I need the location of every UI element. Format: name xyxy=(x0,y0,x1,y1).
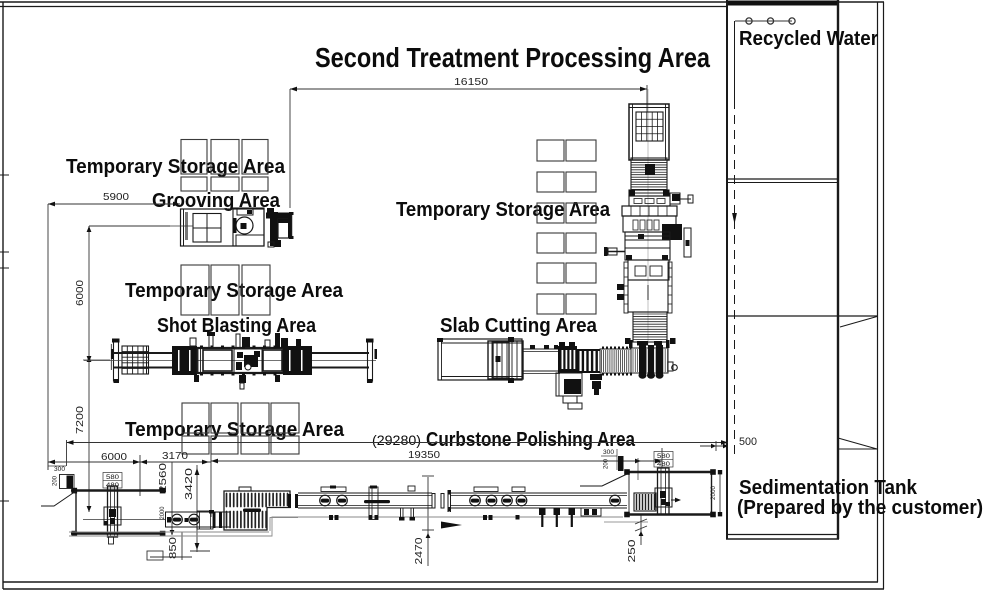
svg-text:6000: 6000 xyxy=(101,451,127,463)
svg-text:7200: 7200 xyxy=(74,406,86,434)
svg-text:6000: 6000 xyxy=(74,280,86,306)
svg-text:300: 300 xyxy=(54,466,65,473)
svg-text:Temporary Storage Area: Temporary Storage Area xyxy=(396,198,611,221)
svg-text:200: 200 xyxy=(52,476,59,486)
svg-text:(29280): (29280) xyxy=(372,433,421,448)
svg-text:19350: 19350 xyxy=(408,449,440,461)
svg-text:Temporary Storage Area: Temporary Storage Area xyxy=(66,155,286,178)
svg-text:5900: 5900 xyxy=(103,191,129,203)
svg-text:580: 580 xyxy=(106,474,119,481)
svg-text:Temporary Storage Area: Temporary Storage Area xyxy=(125,418,345,441)
svg-text:300: 300 xyxy=(603,449,614,456)
svg-text:Curbstone Polishing Area: Curbstone Polishing Area xyxy=(426,428,635,451)
svg-text:Second Treatment Processing A: Second Treatment Processing Area xyxy=(315,42,711,73)
svg-text:16150: 16150 xyxy=(454,76,488,88)
svg-text:480: 480 xyxy=(657,461,670,468)
svg-text:200: 200 xyxy=(603,459,610,469)
svg-text:3170: 3170 xyxy=(162,450,188,462)
svg-text:2470: 2470 xyxy=(413,537,425,564)
svg-text:(Prepared by the customer): (Prepared by the customer) xyxy=(737,496,983,519)
svg-text:3420: 3420 xyxy=(183,468,195,500)
svg-text:Temporary Storage Area: Temporary Storage Area xyxy=(125,279,344,302)
svg-text:Recycled Water: Recycled Water xyxy=(739,27,878,50)
svg-text:Slab Cutting Area: Slab Cutting Area xyxy=(440,314,598,337)
svg-text:250: 250 xyxy=(626,539,638,562)
svg-text:580: 580 xyxy=(657,453,670,460)
svg-text:850: 850 xyxy=(167,537,179,559)
svg-text:500: 500 xyxy=(739,436,757,448)
